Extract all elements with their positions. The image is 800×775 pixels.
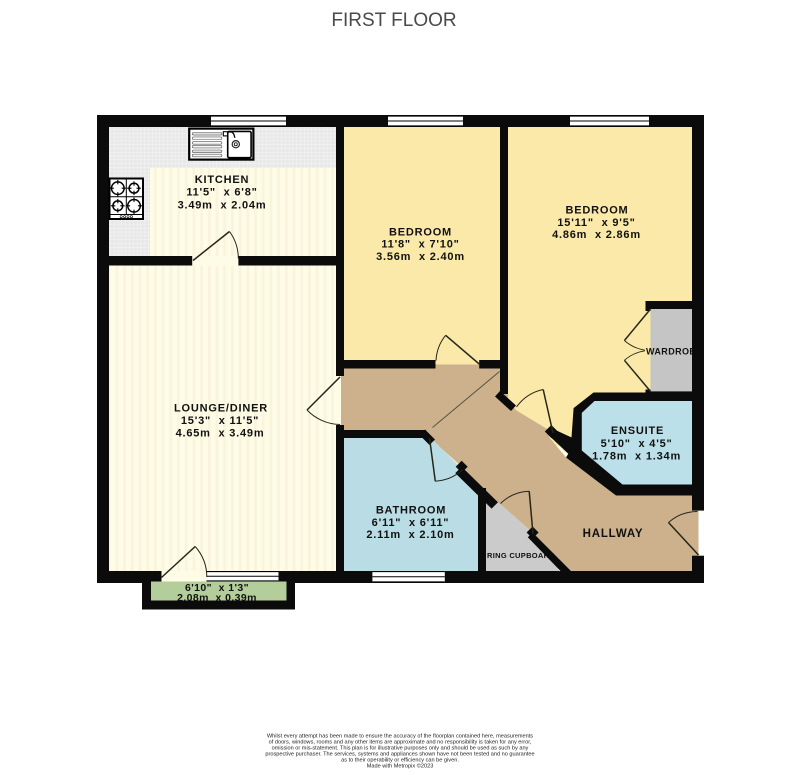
svg-text:6'11" x 6'11": 6'11" x 6'11"	[372, 517, 450, 529]
svg-text:LOUNGE/DINER: LOUNGE/DINER	[174, 403, 268, 415]
svg-text:5'10" x 4'5": 5'10" x 4'5"	[601, 438, 673, 450]
svg-text:3.49m x 2.04m: 3.49m x 2.04m	[178, 200, 267, 212]
svg-text:KITCHEN: KITCHEN	[195, 174, 250, 186]
svg-text:2.11m x 2.10m: 2.11m x 2.10m	[366, 529, 454, 541]
svg-text:1.78m x 1.34m: 1.78m x 1.34m	[592, 451, 681, 463]
svg-text:BATHROOM: BATHROOM	[376, 504, 446, 516]
svg-text:4.86m x 2.86m: 4.86m x 2.86m	[552, 229, 641, 241]
svg-text:FIRST FLOOR: FIRST FLOOR	[331, 10, 456, 31]
svg-text:15'3" x 11'5": 15'3" x 11'5"	[181, 415, 259, 427]
svg-text:11'5" x 6'8": 11'5" x 6'8"	[186, 187, 257, 199]
svg-text:15'11" x 9'5": 15'11" x 9'5"	[557, 217, 635, 229]
svg-text:BEDROOM: BEDROOM	[565, 204, 628, 216]
svg-text:2.08m x 0.39m: 2.08m x 0.39m	[177, 592, 257, 604]
svg-text:BEDROOM: BEDROOM	[389, 226, 452, 238]
svg-text:3.56m x 2.40m: 3.56m x 2.40m	[376, 251, 465, 263]
svg-text:Made with Metropix ©2023: Made with Metropix ©2023	[367, 763, 434, 770]
svg-text:11'8" x 7'10": 11'8" x 7'10"	[381, 239, 459, 251]
svg-text:4.65m x 3.49m: 4.65m x 3.49m	[176, 428, 265, 440]
svg-text:ENSUITE: ENSUITE	[611, 425, 664, 437]
svg-text:HALLWAY: HALLWAY	[583, 528, 644, 540]
